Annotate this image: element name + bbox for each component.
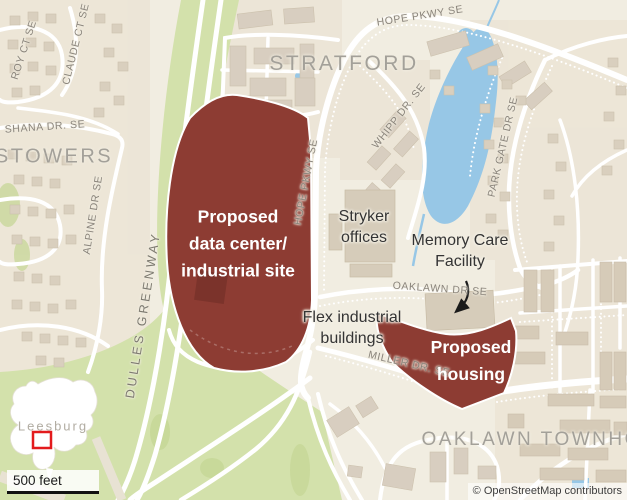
scale-bar: 500 feet (7, 470, 99, 494)
map-canvas: ROY CT SE CLAUDE CT SE SHANA DR. SE ALPI… (0, 0, 627, 500)
osm-attribution[interactable]: © OpenStreetMap contributors (468, 483, 627, 500)
memory-care-building (425, 290, 495, 331)
data-center-site-polygon (166, 95, 312, 372)
scale-bar-label: 500 feet (13, 473, 62, 488)
basemap-graphic (0, 0, 627, 500)
